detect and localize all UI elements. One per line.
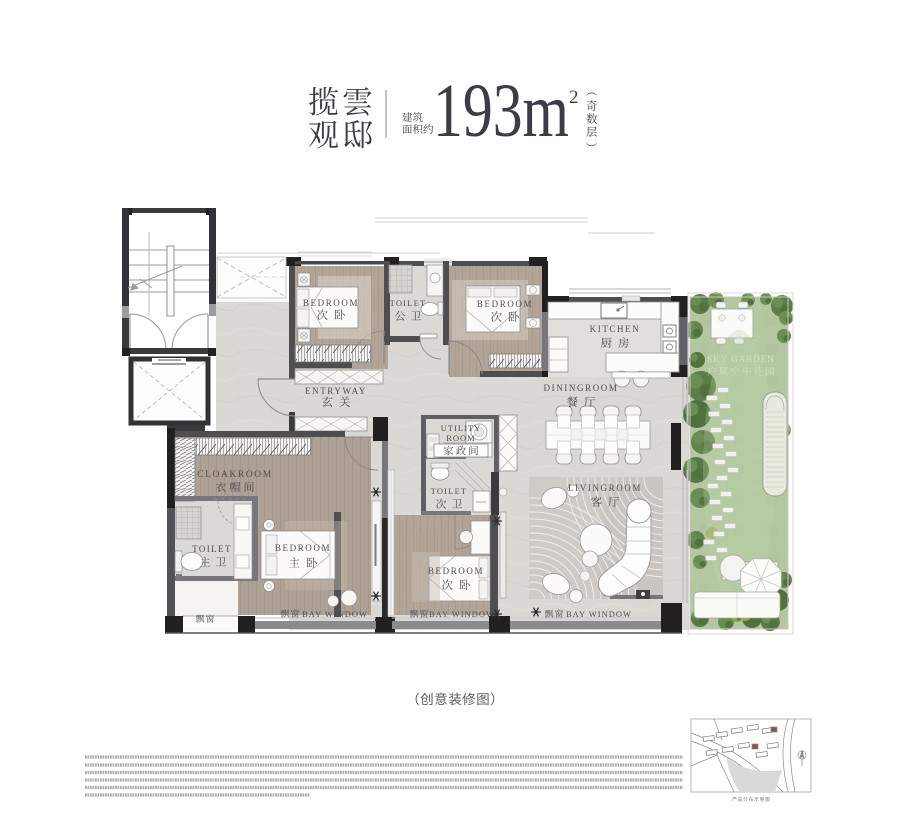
svg-text:2: 2: [569, 87, 579, 108]
svg-text:BEDROOM: BEDROOM: [428, 566, 484, 576]
svg-text:UTILITY: UTILITY: [441, 423, 482, 433]
svg-text:BEDROOM: BEDROOM: [303, 298, 359, 308]
svg-text:TOILET: TOILET: [431, 486, 468, 496]
svg-text:ENTRYWAY: ENTRYWAY: [305, 386, 367, 396]
svg-text:ROOM: ROOM: [446, 433, 476, 443]
svg-text:BAY WINDOW: BAY WINDOW: [302, 609, 368, 619]
svg-text:TOILET: TOILET: [390, 298, 427, 308]
svg-text:193m: 193m: [433, 69, 569, 153]
svg-text:DININGROOM: DININGROOM: [544, 383, 619, 393]
svg-text:BAY WINDOW: BAY WINDOW: [429, 609, 495, 619]
svg-text:LIVINGROOM: LIVINGROOM: [568, 483, 642, 493]
svg-text:BEDROOM: BEDROOM: [275, 543, 331, 553]
svg-text:BEDROOM: BEDROOM: [477, 299, 533, 309]
svg-text:TOILET: TOILET: [192, 544, 232, 554]
svg-text:KITCHEN: KITCHEN: [590, 324, 641, 334]
svg-text:BAY WINDOW: BAY WINDOW: [566, 609, 632, 619]
svg-text:CLOAKROOM: CLOAKROOM: [197, 470, 273, 480]
